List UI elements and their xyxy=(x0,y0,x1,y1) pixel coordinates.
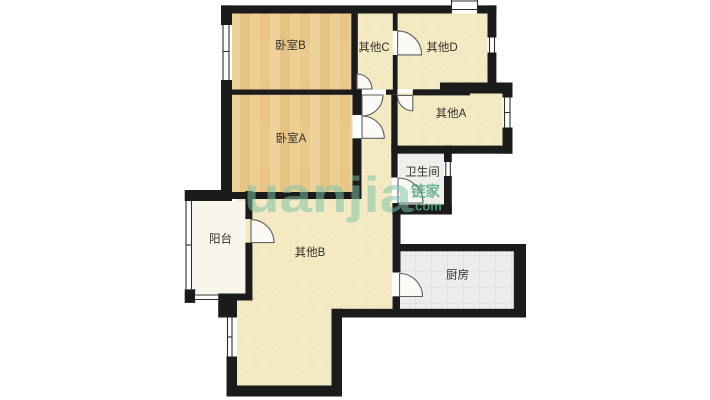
svg-text:.com: .com xyxy=(412,199,442,214)
svg-text:其他A: 其他A xyxy=(436,107,467,120)
svg-text:厨房: 厨房 xyxy=(446,269,469,282)
svg-text:其他C: 其他C xyxy=(358,41,389,54)
svg-text:阳台: 阳台 xyxy=(209,232,232,246)
svg-text:卧室B: 卧室B xyxy=(275,38,306,52)
svg-text:卧室A: 卧室A xyxy=(276,131,307,145)
svg-text:uanjia: uanjia xyxy=(244,167,413,223)
svg-text:其他D: 其他D xyxy=(426,41,457,54)
svg-text:其他B: 其他B xyxy=(295,246,326,259)
